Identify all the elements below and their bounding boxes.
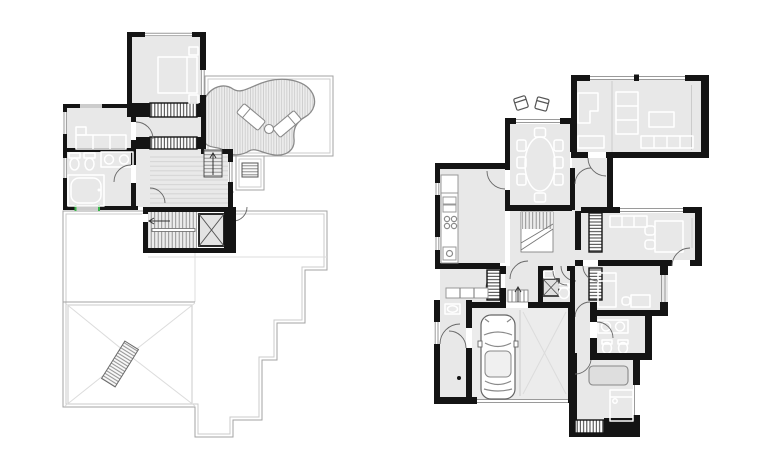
hip-roof: [63, 302, 195, 406]
bedroom-floor: [132, 37, 201, 113]
cabinet-row: [446, 288, 488, 298]
terrace-steps: [204, 150, 222, 177]
rooflight-icon: [242, 163, 258, 177]
car-icon: [478, 315, 518, 399]
roof-panel-icon: [102, 341, 139, 387]
column-icon: [457, 376, 461, 380]
upper-floor-plan: [63, 32, 333, 437]
outdoor-chair-icon: [513, 95, 528, 110]
sink-icon: [443, 197, 456, 212]
side-table-icon: [265, 125, 274, 134]
living-floor: [576, 80, 702, 152]
corridor-floor: [136, 154, 150, 207]
plans-canvas: [0, 0, 767, 474]
corridor-wall: [590, 302, 597, 316]
outdoor-chair-icon: [535, 97, 550, 112]
l-stair: [521, 212, 553, 252]
wardrobe-strip: [575, 420, 604, 433]
ground-floor-plan: [434, 75, 709, 438]
kitchen-counter: [441, 175, 458, 263]
entry-canopy: [236, 156, 264, 190]
wardrobe-strip: [150, 103, 197, 117]
wardrobe-strip: [487, 270, 500, 300]
roof-terrace: [205, 76, 333, 156]
wardrobe-strip: [150, 137, 197, 149]
oven-icon: [443, 247, 456, 260]
stair-room: [142, 207, 236, 253]
wardrobe-strip: [589, 213, 602, 252]
column-icon: [229, 190, 234, 195]
shaft-icon: [199, 214, 224, 246]
shaft-icon: [543, 279, 559, 296]
floor-plan-sheet: [0, 0, 767, 474]
bed-sofa: [589, 366, 628, 385]
